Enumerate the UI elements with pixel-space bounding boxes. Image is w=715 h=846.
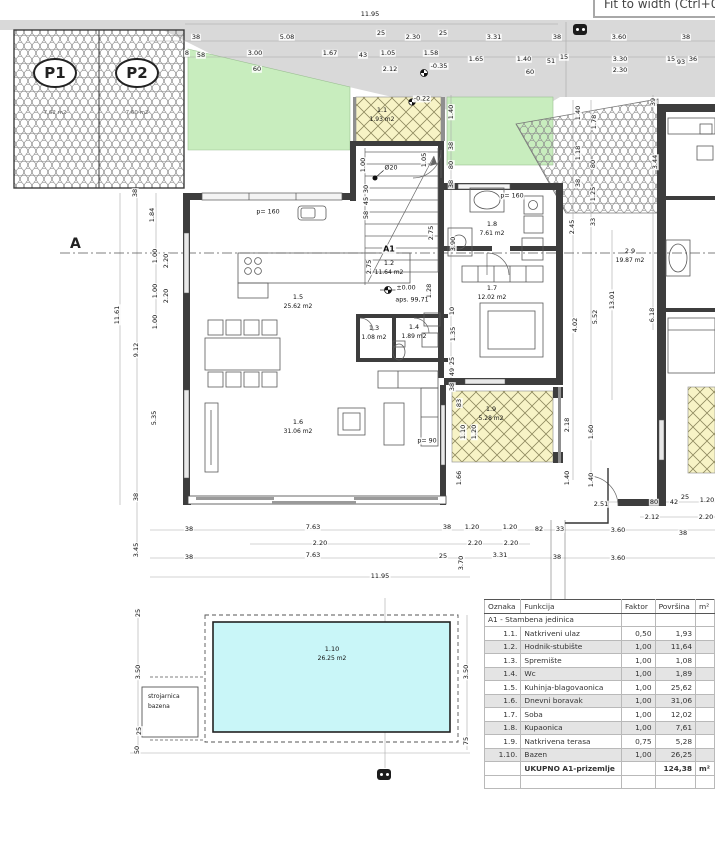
dim-label: 60 — [252, 66, 262, 73]
dim-label: 38 — [575, 178, 582, 188]
parking-area — [14, 30, 184, 188]
room-label-living: 1.6 31.06 m2 — [284, 417, 313, 436]
dim-label: 25 — [376, 30, 386, 37]
dim-label: 25 — [449, 356, 456, 366]
room-label-terrace: 1.9 5.28 m2 — [479, 404, 504, 423]
dim-label: 38 — [132, 188, 139, 198]
dim-label: 10 — [449, 306, 456, 316]
dim-label: 7.63 — [305, 552, 321, 559]
dim-label: 33 — [590, 217, 597, 227]
dim-label: 1.20 — [471, 424, 478, 440]
dim-label: 1.00 — [152, 283, 159, 299]
legend-row: 1.9.Natkrivena terasa0,755,28 — [485, 735, 715, 749]
floor-plan-canvas: 11.95385.08252.30253.31383.60388583.001.… — [0, 0, 715, 846]
dim-label: 49 — [449, 367, 456, 377]
dim-label: 25 — [680, 494, 690, 501]
dim-label: 1.40 — [448, 104, 455, 120]
dim-label: 38 — [184, 554, 194, 561]
stamp-icon — [573, 24, 587, 35]
dim-label: 1.60 — [588, 424, 595, 440]
dim-label: 1.18 — [575, 145, 582, 161]
dim-label: 1.40 — [564, 470, 571, 486]
room-label-bathroom: 1.8 7.61 m2 — [480, 219, 505, 238]
windows — [184, 184, 664, 504]
dim-label: 38 — [442, 524, 452, 531]
dim-label: 2.20 — [698, 514, 714, 521]
dim-label: 1.00 — [152, 248, 159, 264]
dim-label: 5.52 — [592, 309, 599, 325]
dim-label: 3.50 — [135, 664, 142, 680]
dim-label: 80 — [649, 499, 659, 506]
dim-label: 38 — [448, 141, 455, 151]
room-label-wc: 1.4 1.89 m2 — [402, 322, 427, 341]
dim-label: 38 — [184, 526, 194, 533]
dim-label: 1.40 — [588, 472, 595, 488]
dim-label: 1.65 — [468, 56, 484, 63]
dim-label: 2.30 — [405, 34, 421, 41]
dim-label: 2.20 — [163, 253, 170, 269]
dim-label: 60 — [525, 69, 535, 76]
dim-label: 15 — [666, 56, 676, 63]
parking-p2-area: 7,60 m2 — [126, 110, 149, 116]
dim-label: 1.05 — [421, 152, 428, 168]
dim-label: 1.10 — [460, 424, 467, 440]
dim-label: 3.31 — [486, 34, 502, 41]
parking-p1-area: 7,62 m2 — [44, 110, 67, 116]
dim-label: 3.60 — [610, 527, 626, 534]
parapet-bath-label: p= 160 — [499, 193, 524, 200]
dim-label: 38 — [552, 34, 562, 41]
dim-label: 25 — [438, 30, 448, 37]
room-label-bedroom: 1.7 12.02 m2 — [478, 283, 507, 302]
dim-label: 80 — [590, 159, 597, 169]
dim-label: 38 — [191, 34, 201, 41]
section-letter: A — [70, 236, 81, 252]
dim-label: 2.51 — [593, 501, 609, 508]
dim-label: 82 — [534, 526, 544, 533]
dim-label: 36 — [688, 56, 698, 63]
dim-label: 38 — [681, 34, 691, 41]
bedroom-furniture — [462, 266, 543, 357]
dim-label: 3.45 — [133, 542, 140, 558]
dim-label: 2.20 — [467, 540, 483, 547]
dim-label: 38 — [552, 554, 562, 561]
dim-label: 2.12 — [644, 514, 660, 521]
dim-label: 13.01 — [609, 290, 616, 311]
dim-label: -0.35 — [430, 63, 449, 70]
dim-label: 2.75 — [428, 225, 435, 241]
dim-label: 7.63 — [305, 524, 321, 531]
dim-label: 6.18 — [649, 307, 656, 323]
pool-water — [213, 622, 450, 732]
dim-label: 38 — [133, 492, 140, 502]
dim-label: 2.12 — [382, 66, 398, 73]
living-furniture — [205, 371, 438, 472]
dim-label: 50 — [134, 745, 141, 755]
stamp-icon — [377, 769, 391, 780]
dim-label: 9.12 — [133, 342, 140, 358]
level-abs-label: aps. 99,71 — [394, 297, 429, 304]
level-zero-label: ±0.00 — [395, 285, 416, 292]
dim-label: 2.20 — [503, 540, 519, 547]
dim-label: 2.30 — [612, 67, 628, 74]
dim-label: 3.70 — [458, 555, 465, 571]
dim-label: 43 — [358, 52, 368, 59]
dim-label: 2.75 — [366, 259, 373, 275]
viewer-tooltip: Fit to width (Ctrl+0) — [593, 0, 715, 18]
dim-label: 2.20 — [163, 288, 170, 304]
legend-row: 1.7.Soba1,0012,02 — [485, 708, 715, 722]
dim-label: 1.20 — [502, 524, 518, 531]
dim-label: 1.35 — [450, 326, 457, 342]
dim-label: 11.61 — [114, 305, 121, 326]
dim-label: 3.31 — [492, 552, 508, 559]
dim-label: 75 — [463, 736, 470, 746]
dim-label: 58 — [363, 210, 370, 220]
dim-label: 3.90 — [450, 236, 457, 252]
dim-label: 51 — [546, 58, 556, 65]
legend-header-row: Oznaka Funkcija Faktor Površina m² — [485, 600, 715, 614]
dim-label: 1.00 — [152, 314, 159, 330]
dim-label: 11.95 — [370, 573, 391, 580]
dim-label: 2.45 — [569, 219, 576, 235]
dim-label: 1.05 — [380, 50, 396, 57]
dim-label: 38 — [448, 179, 455, 189]
dim-label: 2.18 — [564, 417, 571, 433]
room-label-hall: 1.2 11.64 m2 — [375, 258, 404, 277]
dim-label: 11.95 — [360, 11, 381, 18]
legend-row: 1.3.Spremište1,001,08 — [485, 654, 715, 668]
legend-row: 1.8.Kupaonica1,007,61 — [485, 721, 715, 735]
parking-p2-label: P2 — [126, 64, 147, 82]
dim-label: 1.58 — [423, 50, 439, 57]
dim-label: 3.60 — [611, 34, 627, 41]
dim-label: 3.44 — [652, 154, 659, 170]
dim-label: 3.00 — [247, 50, 263, 57]
dim-label: 1.66 — [456, 470, 463, 486]
dim-label: 1.40 — [575, 105, 582, 121]
legend-empty-row — [485, 775, 715, 789]
dim-label: 4.02 — [572, 317, 579, 333]
dim-label: 3.30 — [612, 56, 628, 63]
column-label: Ø20 — [384, 165, 399, 172]
dim-label: 3.60 — [610, 555, 626, 562]
dim-label: 93 — [676, 59, 686, 66]
dim-label: 33 — [555, 526, 565, 533]
dim-label: 38 — [449, 382, 456, 392]
dim-label: 30 — [363, 184, 370, 194]
dim-label: 5.35 — [151, 410, 158, 426]
legend-row: 1.10.Bazen1,0026,25 — [485, 748, 715, 762]
dim-label: 25 — [438, 553, 448, 560]
dim-label: 38 — [678, 530, 688, 537]
legend-row: 1.6.Dnevni boravak1,0031,06 — [485, 694, 715, 708]
dim-label: 25 — [136, 726, 143, 736]
area-legend-table: Oznaka Funkcija Faktor Površina m² A1 - … — [484, 599, 715, 789]
dim-label: 5.08 — [279, 34, 295, 41]
legend-row: 1.4.Wc1,001,89 — [485, 667, 715, 681]
covered-terrace-neighbour — [688, 387, 715, 473]
dim-label: 42 — [669, 499, 679, 506]
elev-porch-label: -0.22 — [413, 96, 431, 103]
room-label-entrance: 1.1 1.93 m2 — [370, 105, 395, 124]
dim-label: 83 — [456, 398, 463, 408]
dim-label: 1.84 — [149, 207, 156, 223]
covered-terrace — [452, 391, 553, 462]
parapet-kitchen-label: p= 160 — [255, 209, 280, 216]
room-label-kitchen: 1.5 25.62 m2 — [284, 292, 313, 311]
legend-group-row: A1 - Stambena jedinica — [485, 613, 715, 627]
room-label-storage: 1.3 1.08 m2 — [362, 323, 387, 342]
dim-label: 1.25 — [590, 186, 597, 202]
dim-label: 15 — [559, 54, 569, 61]
dim-label: 1.20 — [464, 524, 480, 531]
dim-label: 25 — [135, 608, 142, 618]
parapet-living-label: p= 90 — [416, 438, 437, 445]
dim-label: 1.00 — [360, 157, 367, 173]
pool-machine-room-label: strojarnica bazena — [148, 692, 180, 711]
legend-row: 1.2.Hodnik-stubište1,0011,64 — [485, 640, 715, 654]
dim-label: 8 — [184, 50, 190, 57]
legend-row: 1.1.Natkriveni ulaz0,501,93 — [485, 627, 715, 641]
room-label-pool: 1.10 26.25 m2 — [318, 644, 347, 663]
dim-label: 80 — [448, 160, 455, 170]
parking-p1-label: P1 — [44, 64, 65, 82]
dim-label: 3.50 — [463, 664, 470, 680]
dim-label: 2.20 — [312, 540, 328, 547]
dim-label: 45 — [363, 196, 370, 206]
legend-total-row: UKUPNO A1-prizemlje 124,38 m² — [485, 762, 715, 776]
dim-label: 58 — [196, 52, 206, 59]
unit-label: A1 — [382, 245, 396, 254]
dim-label: 1.20 — [699, 497, 715, 504]
dim-label: 1.40 — [516, 56, 532, 63]
dim-label: 1.67 — [322, 50, 338, 57]
room-label-neighbour: 2.9 19.87 m2 — [616, 246, 645, 265]
dim-label: 39 — [650, 97, 657, 107]
dim-label: 1.78 — [591, 114, 598, 130]
legend-row: 1.5.Kuhinja-blagovaonica1,0025,62 — [485, 681, 715, 695]
